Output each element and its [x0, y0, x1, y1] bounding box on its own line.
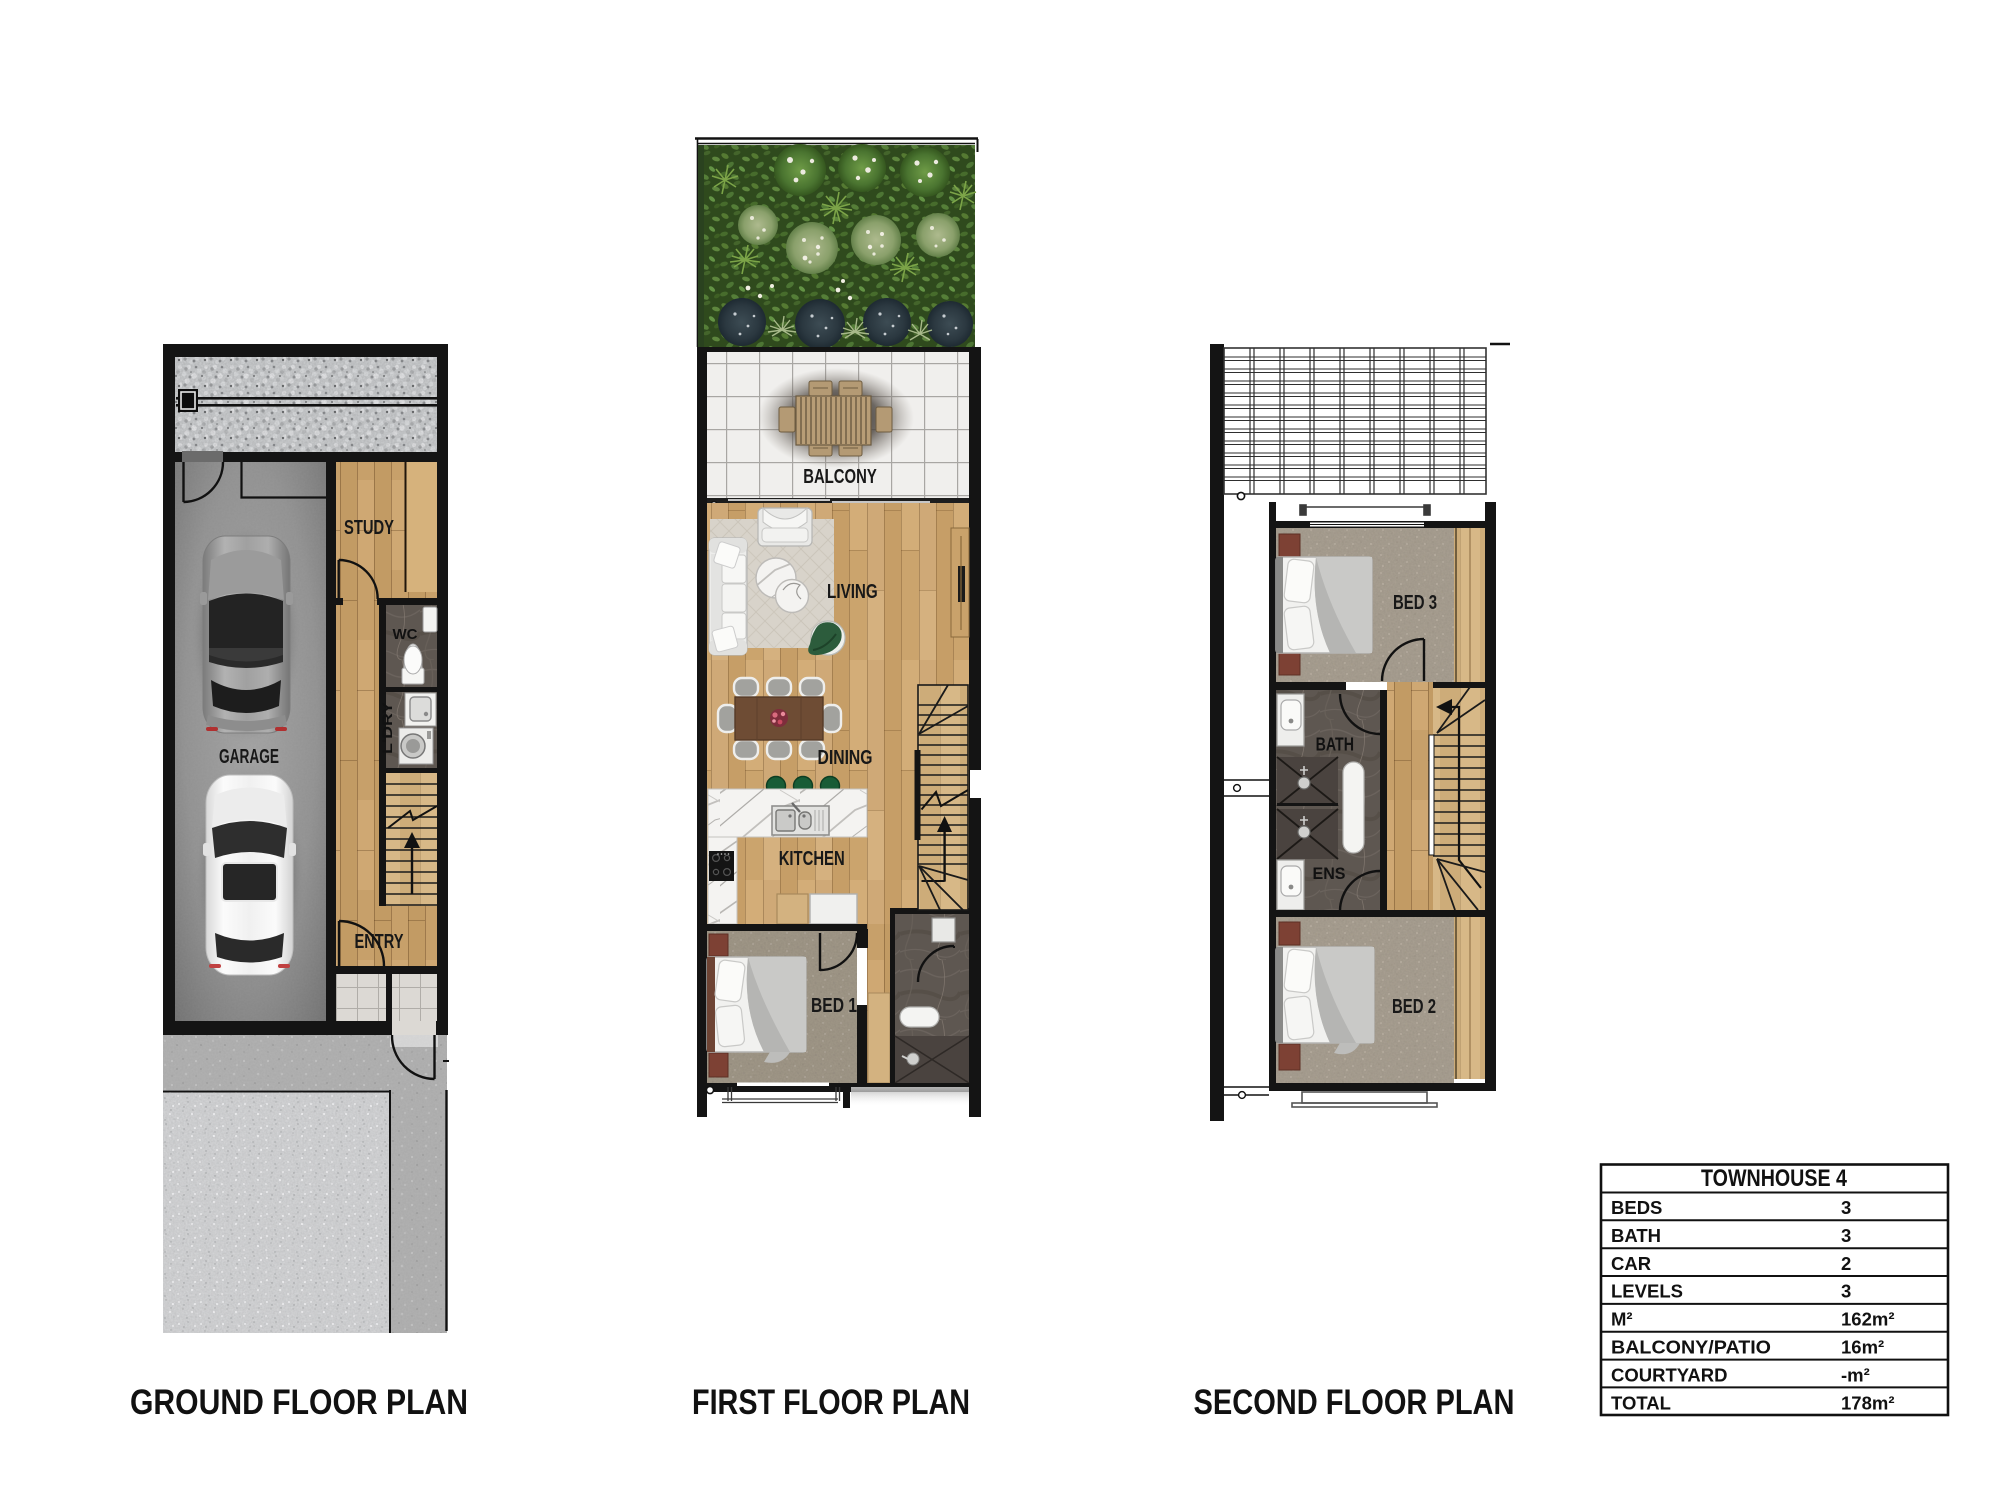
svg-text:SECOND FLOOR PLAN: SECOND FLOOR PLAN	[1194, 1383, 1515, 1422]
svg-text:162m²: 162m²	[1841, 1309, 1894, 1330]
svg-text:16m²: 16m²	[1841, 1337, 1884, 1358]
svg-text:TOTAL: TOTAL	[1611, 1393, 1671, 1414]
svg-text:BEDS: BEDS	[1611, 1197, 1662, 1218]
svg-text:GROUND FLOOR PLAN: GROUND FLOOR PLAN	[130, 1383, 468, 1422]
svg-text:M²: M²	[1611, 1309, 1633, 1330]
svg-text:CAR: CAR	[1611, 1253, 1651, 1274]
svg-text:3: 3	[1841, 1197, 1851, 1218]
svg-text:BED 2: BED 2	[1392, 996, 1436, 1018]
svg-text:LIVING: LIVING	[827, 581, 878, 603]
svg-text:LEVELS: LEVELS	[1611, 1281, 1683, 1302]
svg-text:-m²: -m²	[1841, 1365, 1870, 1386]
svg-text:WC: WC	[393, 626, 418, 643]
svg-text:3: 3	[1841, 1225, 1851, 1246]
svg-text:2: 2	[1841, 1253, 1851, 1274]
svg-text:BED 1: BED 1	[811, 995, 857, 1017]
svg-text:COURTYARD: COURTYARD	[1611, 1365, 1728, 1386]
svg-text:KITCHEN: KITCHEN	[779, 848, 845, 870]
svg-text:BALCONY/PATIO: BALCONY/PATIO	[1611, 1337, 1771, 1358]
svg-text:STUDY: STUDY	[344, 517, 394, 539]
svg-text:BALCONY: BALCONY	[803, 466, 877, 488]
svg-text:ENS: ENS	[1313, 864, 1346, 883]
svg-text:TOWNHOUSE 4: TOWNHOUSE 4	[1701, 1165, 1848, 1192]
svg-text:BATH: BATH	[1611, 1225, 1661, 1246]
svg-text:BED 3: BED 3	[1393, 592, 1437, 614]
svg-text:L'DRY: L'DRY	[379, 701, 395, 754]
svg-text:178m²: 178m²	[1841, 1393, 1894, 1414]
svg-text:BATH: BATH	[1316, 734, 1354, 755]
svg-text:DINING: DINING	[818, 747, 873, 769]
svg-text:ENTRY: ENTRY	[355, 931, 404, 953]
svg-text:FIRST FLOOR PLAN: FIRST FLOOR PLAN	[692, 1383, 970, 1422]
svg-text:3: 3	[1841, 1281, 1851, 1302]
